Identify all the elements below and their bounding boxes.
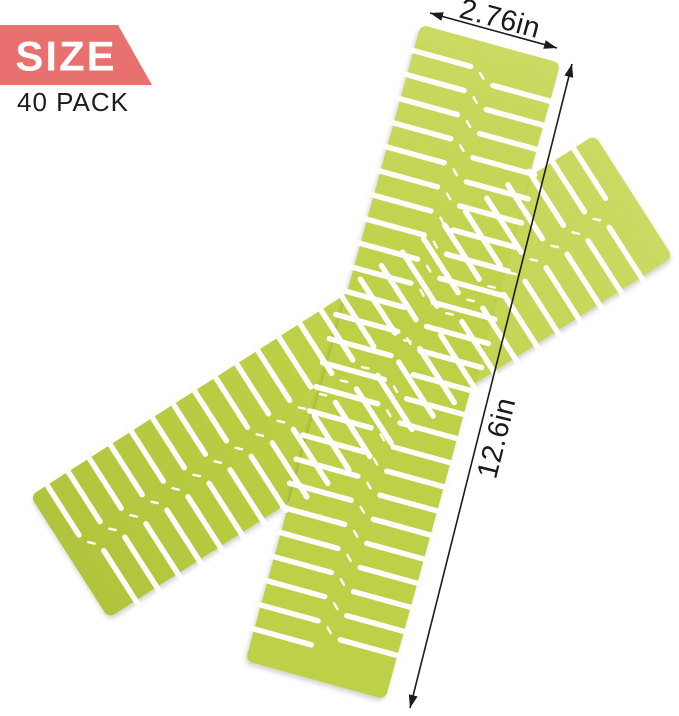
length-arrowhead-top-icon — [564, 64, 573, 78]
width-arrowhead-right-icon — [543, 40, 557, 49]
length-dimension-label: 12.6in — [472, 394, 523, 481]
size-badge: SIZE 40 PACK — [0, 25, 152, 117]
pack-count-label: 40 PACK — [17, 87, 129, 117]
width-arrowhead-left-icon — [430, 12, 444, 21]
size-badge-label: SIZE — [15, 33, 116, 80]
product-photo-canvas: 2.76in 12.6in SIZE 40 PACK — [0, 0, 679, 716]
product-image: 2.76in 12.6in SIZE 40 PACK — [0, 0, 679, 716]
length-arrowhead-bottom-icon — [409, 694, 418, 708]
